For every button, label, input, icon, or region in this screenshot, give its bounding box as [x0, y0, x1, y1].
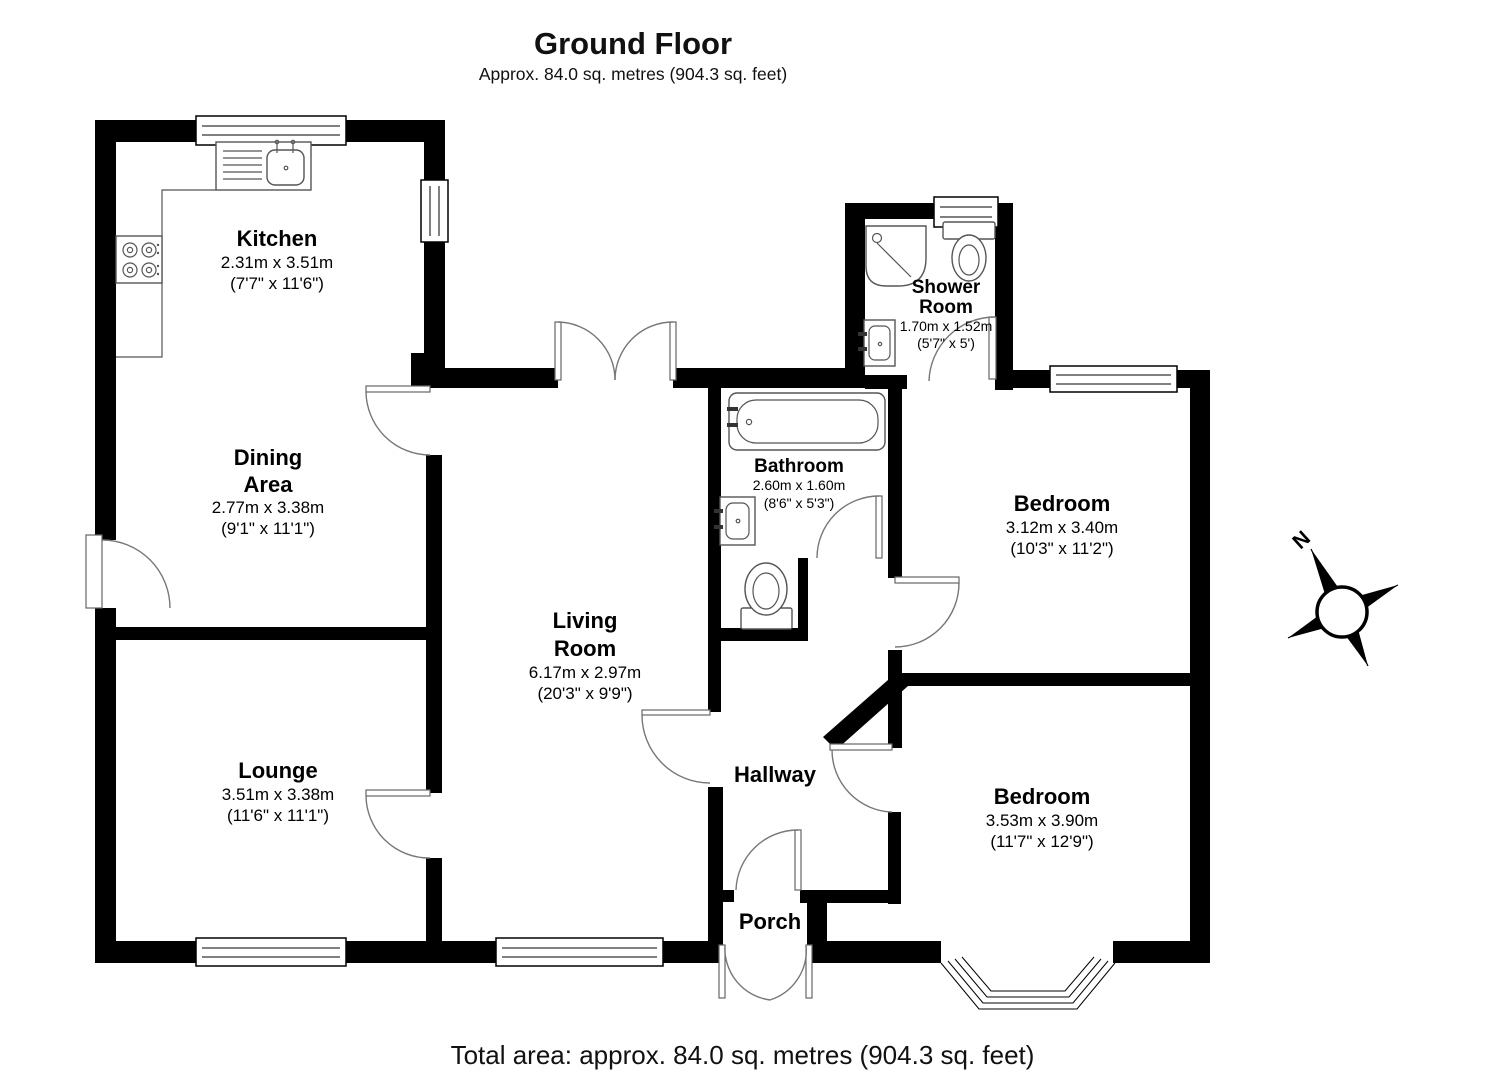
- room-label-lounge: Lounge 3.51m x 3.38m (11'6" x 11'1"): [222, 758, 334, 825]
- room-label-bathroom: Bathroom 2.60m x 1.60m (8'6" x 5'3"): [753, 456, 846, 511]
- bedroom2-door: [830, 744, 892, 812]
- room-label-kitchen: Kitchen 2.31m x 3.51m (7'7" x 11'6"): [221, 226, 333, 293]
- svg-text:Bathroom: Bathroom: [754, 456, 844, 477]
- svg-text:(11'7" x 12'9"): (11'7" x 12'9"): [990, 832, 1093, 851]
- svg-text:2.77m x 3.38m: 2.77m x 3.38m: [212, 498, 324, 517]
- compass-circle: [1317, 587, 1367, 637]
- kitchen-sink: [216, 140, 311, 190]
- room-label-dining-area: Dining Area 2.77m x 3.38m (9'1" x 11'1"): [212, 445, 324, 538]
- svg-text:(20'3" x 9'9"): (20'3" x 9'9"): [537, 684, 632, 703]
- room-labels: Kitchen 2.31m x 3.51m (7'7" x 11'6") Din…: [212, 226, 1118, 934]
- porch-entrance-doors: [719, 945, 812, 1000]
- kitchen-side-window: [421, 180, 448, 242]
- hob: [116, 236, 162, 283]
- svg-text:3.51m x 3.38m: 3.51m x 3.38m: [222, 785, 334, 804]
- shower-room-basin: [858, 320, 895, 366]
- bedroom1-door: [895, 577, 959, 647]
- floorplan-drawing: Kitchen 2.31m x 3.51m (7'7" x 11'6") Din…: [0, 0, 1485, 1080]
- lounge-living-door: [366, 790, 430, 858]
- room-label-bedroom1: Bedroom 3.12m x 3.40m (10'3" x 11'2"): [1006, 491, 1118, 558]
- svg-text:Shower: Shower: [912, 277, 981, 298]
- dining-living-door: [366, 386, 430, 455]
- room-label-bedroom2: Bedroom 3.53m x 3.90m (11'7" x 12'9"): [986, 784, 1098, 851]
- svg-text:(8'6" x 5'3"): (8'6" x 5'3"): [764, 495, 835, 511]
- svg-text:6.17m x 2.97m: 6.17m x 2.97m: [529, 663, 641, 682]
- svg-text:1.70m x 1.52m: 1.70m x 1.52m: [900, 318, 993, 334]
- svg-text:Porch: Porch: [739, 909, 801, 934]
- svg-text:Living: Living: [553, 608, 618, 633]
- bedroom1-window: [1050, 366, 1177, 392]
- room-label-porch: Porch: [739, 909, 801, 934]
- bathroom-basin: [714, 497, 755, 545]
- svg-text:(11'6" x 11'1"): (11'6" x 11'1"): [227, 806, 329, 825]
- lounge-window: [196, 938, 346, 966]
- svg-text:Room: Room: [919, 297, 973, 318]
- svg-text:3.12m x 3.40m: 3.12m x 3.40m: [1006, 518, 1118, 537]
- svg-text:Room: Room: [554, 636, 616, 661]
- svg-text:(9'1" x 11'1"): (9'1" x 11'1"): [221, 519, 315, 538]
- living-hallway-door: [642, 710, 710, 783]
- compass: N: [1288, 527, 1398, 666]
- room-label-hallway: Hallway: [734, 762, 817, 787]
- bay-window: [941, 957, 1115, 1009]
- svg-text:(10'3" x 11'2"): (10'3" x 11'2"): [1010, 539, 1113, 558]
- bathroom-toilet: [741, 563, 792, 629]
- svg-text:Hallway: Hallway: [734, 762, 817, 787]
- svg-text:3.53m x 3.90m: 3.53m x 3.90m: [986, 811, 1098, 830]
- bathtub: [727, 393, 885, 450]
- svg-text:Area: Area: [244, 472, 294, 497]
- living-room-window: [496, 938, 663, 966]
- svg-text:Kitchen: Kitchen: [237, 226, 318, 251]
- floorplan-page: Ground Floor Approx. 84.0 sq. metres (90…: [0, 0, 1485, 1080]
- svg-text:2.31m x 3.51m: 2.31m x 3.51m: [221, 253, 333, 272]
- svg-text:(5'7" x 5'): (5'7" x 5'): [917, 335, 975, 351]
- svg-text:Dining: Dining: [234, 445, 302, 470]
- svg-text:Lounge: Lounge: [238, 758, 317, 783]
- room-label-living-room: Living Room 6.17m x 2.97m (20'3" x 9'9"): [529, 608, 641, 703]
- porch-hallway-door: [736, 830, 801, 890]
- total-area-label: Total area: approx. 84.0 sq. metres (904…: [0, 1040, 1485, 1071]
- windows: [196, 116, 1177, 1009]
- svg-text:(7'7" x 11'6"): (7'7" x 11'6"): [230, 274, 324, 293]
- kitchen-window: [196, 116, 346, 145]
- svg-text:Bedroom: Bedroom: [994, 784, 1091, 809]
- room-label-shower-room: Shower Room 1.70m x 1.52m (5'7" x 5'): [900, 277, 993, 351]
- dining-exterior-door: [86, 535, 170, 608]
- svg-text:2.60m x 1.60m: 2.60m x 1.60m: [753, 477, 846, 493]
- svg-text:Bedroom: Bedroom: [1014, 491, 1111, 516]
- shower-room-toilet: [943, 222, 995, 281]
- french-doors: [555, 322, 676, 380]
